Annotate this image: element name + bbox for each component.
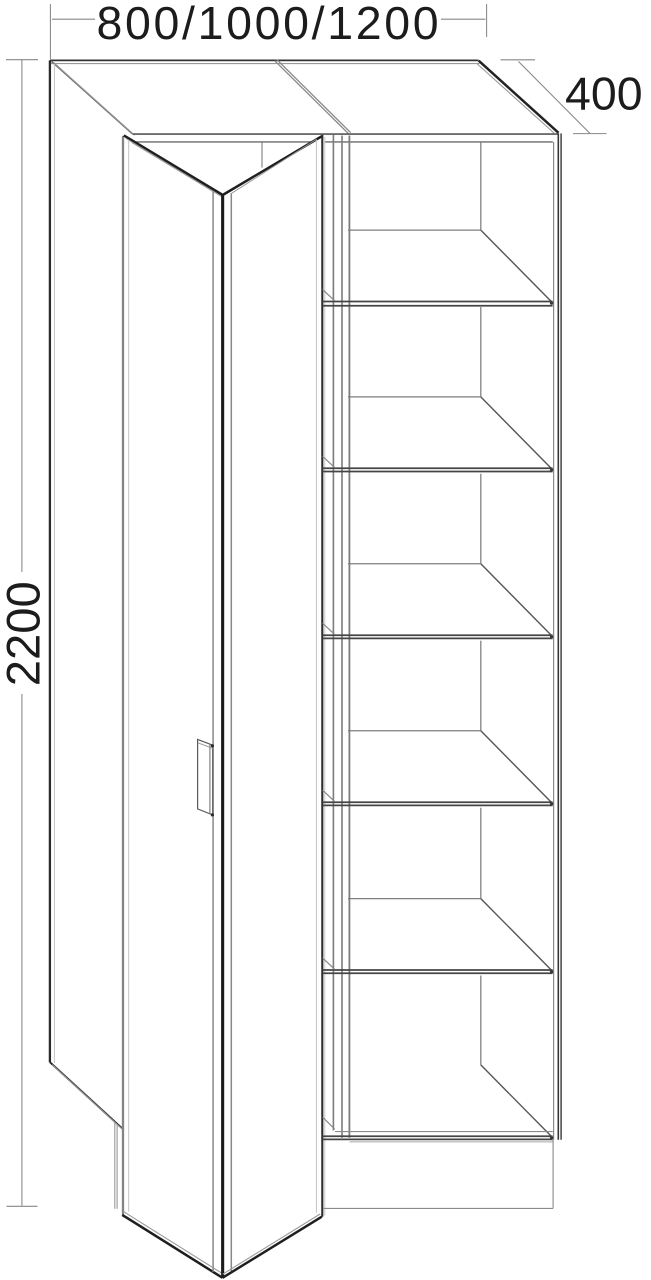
svg-text:800/1000/1200: 800/1000/1200 [97,0,442,49]
svg-text:400: 400 [565,68,643,120]
svg-text:2200: 2200 [0,581,50,686]
